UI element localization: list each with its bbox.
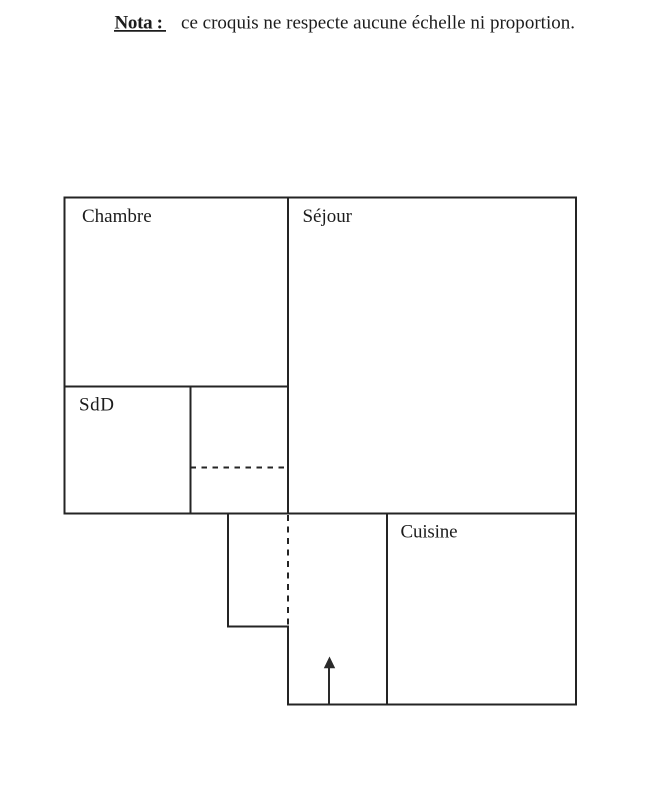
svg-text:Chambre: Chambre bbox=[82, 206, 152, 227]
svg-text:Séjour: Séjour bbox=[303, 206, 353, 227]
svg-text:ce croquis ne respecte aucune: ce croquis ne respecte aucune échelle ni… bbox=[181, 12, 575, 33]
svg-text:SdD: SdD bbox=[79, 395, 114, 416]
svg-text:Cuisine: Cuisine bbox=[401, 522, 458, 543]
